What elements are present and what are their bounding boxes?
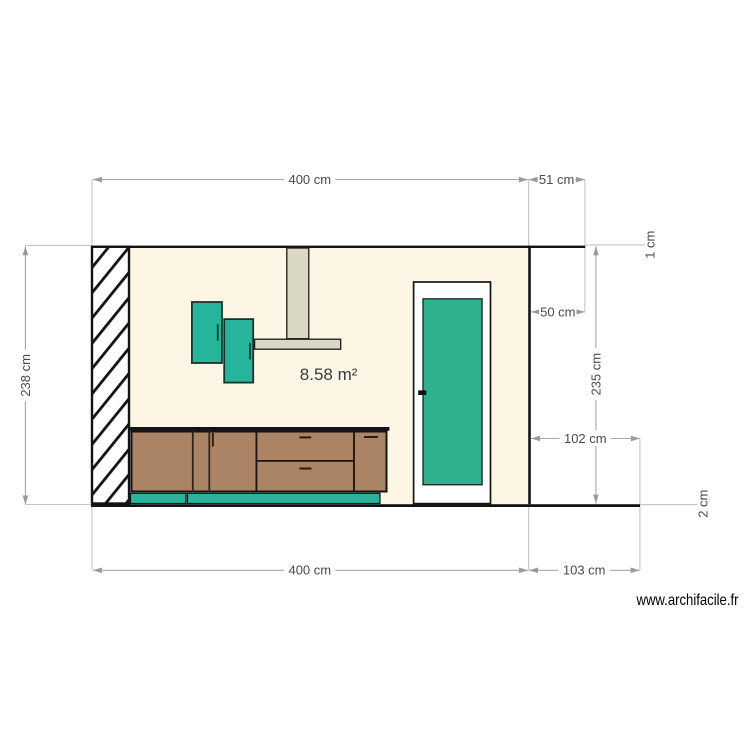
- svg-text:102 cm: 102 cm: [564, 431, 607, 446]
- svg-text:www.archifacile.fr: www.archifacile.fr: [636, 592, 739, 609]
- svg-text:51 cm: 51 cm: [539, 172, 574, 187]
- svg-text:50 cm: 50 cm: [540, 304, 575, 319]
- svg-text:235 cm: 235 cm: [588, 353, 603, 396]
- svg-text:8.58 m²: 8.58 m²: [300, 365, 358, 384]
- svg-text:1 cm: 1 cm: [643, 231, 658, 259]
- svg-text:2 cm: 2 cm: [696, 490, 711, 518]
- svg-text:400 cm: 400 cm: [288, 172, 331, 187]
- svg-text:400 cm: 400 cm: [288, 563, 331, 578]
- svg-text:103 cm: 103 cm: [563, 563, 606, 578]
- svg-text:238 cm: 238 cm: [18, 354, 33, 397]
